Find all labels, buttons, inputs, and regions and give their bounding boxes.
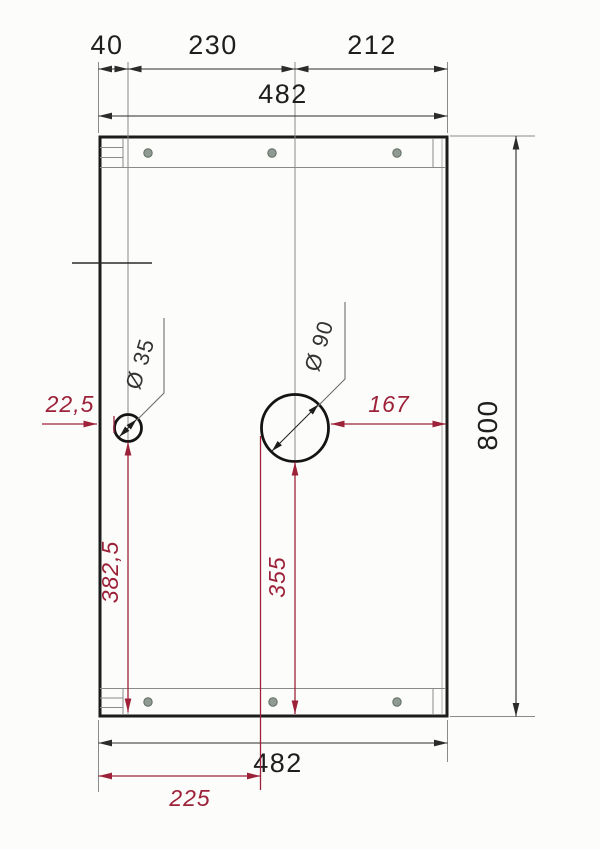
dimension-167: 167 [331,391,446,424]
top-rail [100,139,446,168]
dim-bottom-225: 225 [168,785,210,811]
bottom-dimension-482: 482 [99,720,448,792]
dimension-382-5: 382,5 [97,442,128,712]
screw-hole [269,698,277,706]
large-hole-diameter-label: Ø 90 [299,317,338,374]
dim-right-800: 800 [472,399,503,450]
screw-hole [144,698,152,706]
bottom-rail [100,689,446,716]
dim-top-40: 40 [90,30,123,60]
small-hole-diameter-label: Ø 35 [120,335,159,392]
dimension-355: 355 [264,462,295,714]
right-dimension-800: 800 [450,136,535,717]
dim-top-482: 482 [258,79,308,109]
screw-hole [144,149,152,157]
dim-top-230: 230 [188,30,238,60]
drawing-page: Ø 35 Ø 90 40 230 212 482 800 482 225 [0,0,600,849]
centerlines [128,62,295,715]
dim-right-167: 167 [368,391,410,417]
dim-left-22-5: 22,5 [45,391,95,417]
dim-vert-355: 355 [264,556,290,597]
dimension-22-5: 22,5 [42,391,114,433]
screw-hole [393,149,401,157]
dim-top-212: 212 [347,30,397,60]
dim-vert-382-5: 382,5 [97,541,123,604]
small-hole-callout: Ø 35 [120,318,164,420]
top-dimensions: 40 230 212 482 [90,30,447,133]
panel-outline [100,137,447,716]
bottom-dimension-225: 225 [99,436,261,811]
panel-drawing-canvas: Ø 35 Ø 90 40 230 212 482 800 482 225 [0,0,600,849]
screw-hole [268,149,276,157]
screw-hole [393,698,401,706]
large-hole-callout: Ø 90 [299,302,345,407]
